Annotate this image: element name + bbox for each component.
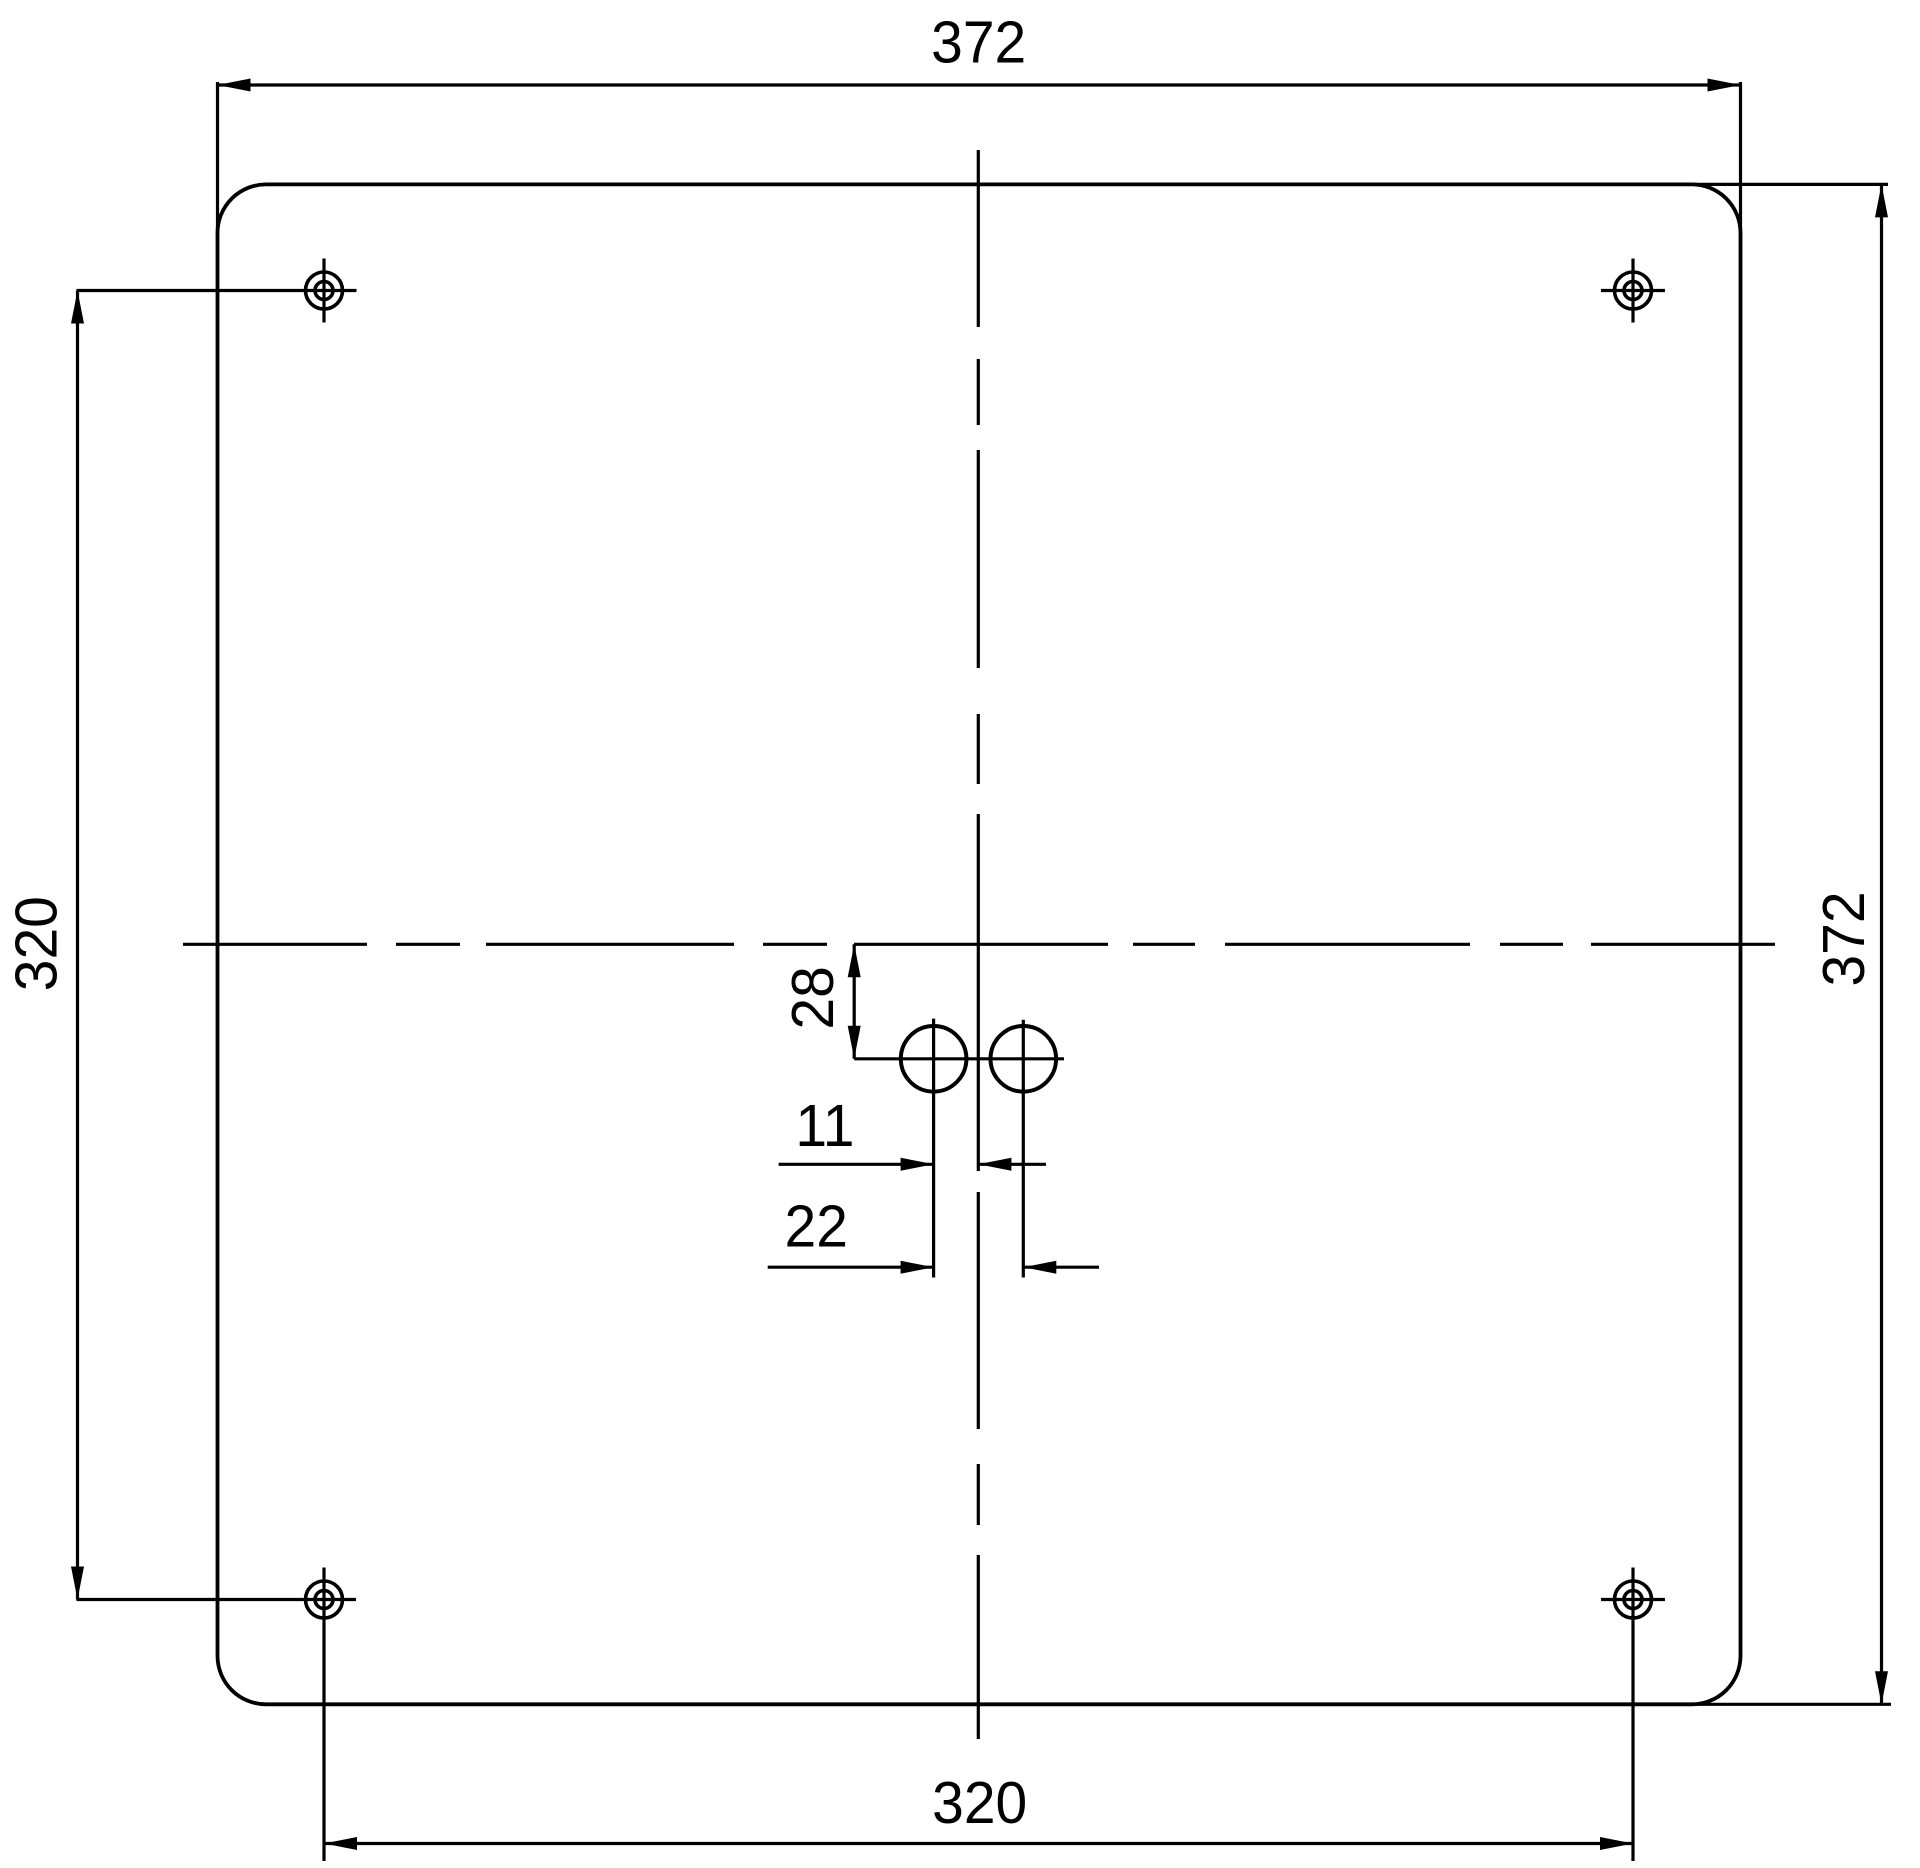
svg-text:11: 11 [795, 1094, 854, 1159]
svg-text:320: 320 [5, 896, 70, 991]
svg-text:320: 320 [932, 1771, 1027, 1836]
svg-text:372: 372 [1812, 891, 1877, 986]
svg-text:28: 28 [781, 966, 846, 1029]
svg-text:372: 372 [931, 11, 1026, 76]
svg-text:22: 22 [785, 1195, 848, 1260]
